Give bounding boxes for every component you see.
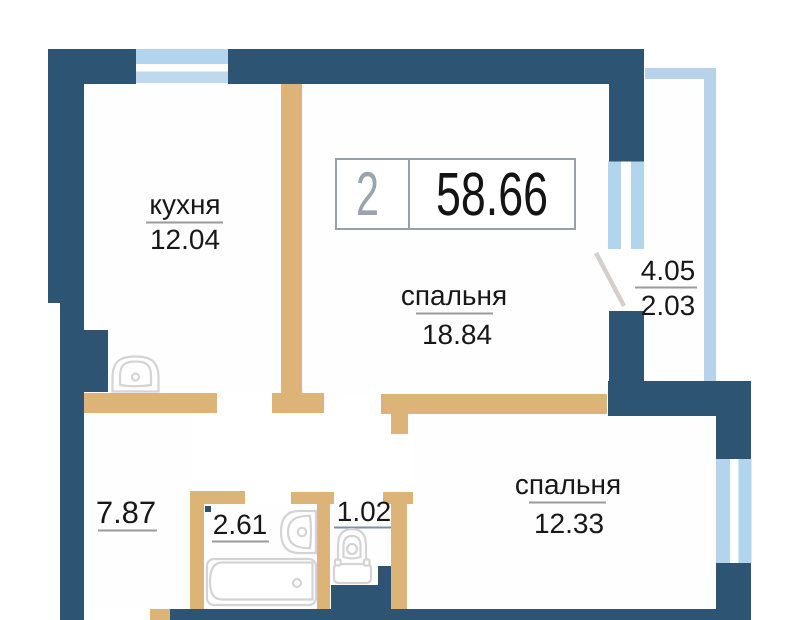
svg-text:1.02: 1.02	[337, 496, 392, 527]
svg-text:12.04: 12.04	[150, 224, 220, 255]
svg-text:спальня: спальня	[515, 469, 621, 500]
svg-text:7.87: 7.87	[96, 495, 156, 530]
svg-text:кухня: кухня	[149, 189, 220, 220]
svg-text:12.33: 12.33	[534, 508, 604, 539]
svg-text:2: 2	[356, 160, 379, 229]
svg-text:спальня: спальня	[401, 280, 507, 311]
svg-text:2.61: 2.61	[213, 509, 268, 540]
svg-text:2.03: 2.03	[641, 290, 696, 321]
svg-text:58.66: 58.66	[436, 160, 548, 228]
svg-text:18.84: 18.84	[422, 319, 492, 350]
svg-text:4.05: 4.05	[641, 255, 696, 286]
